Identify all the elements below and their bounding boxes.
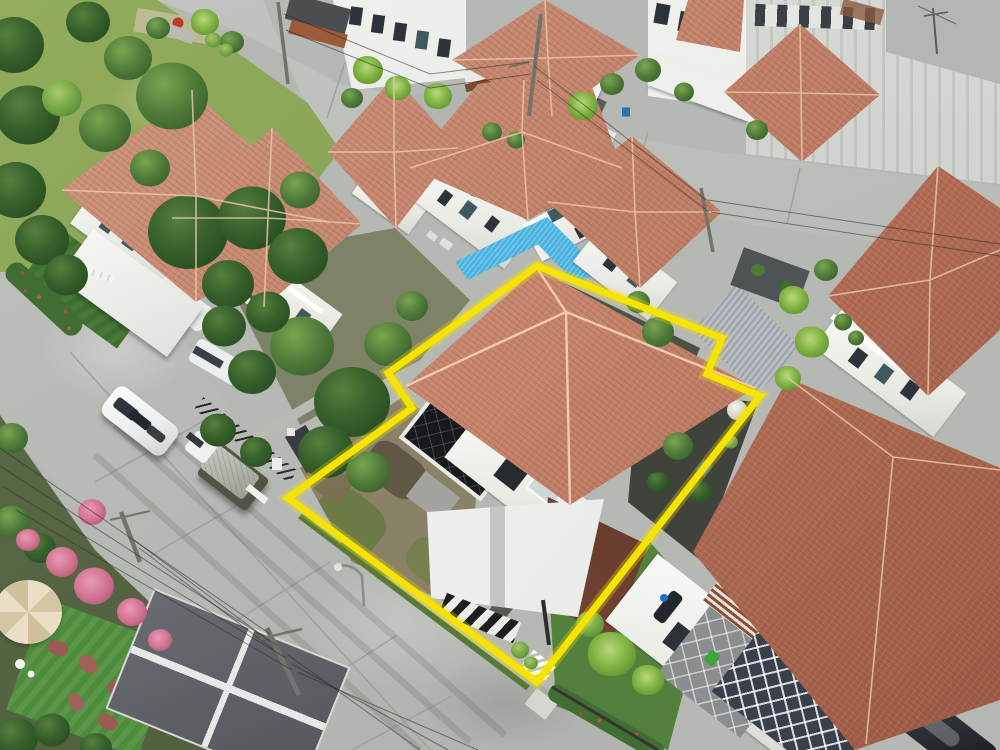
street-lamp [334, 563, 364, 606]
power-lines [0, 14, 1000, 750]
outline-yellow [288, 266, 760, 682]
target-property-outline: Highlighted property boundary [288, 266, 760, 682]
overlay-annotations: Highlighted property boundary [0, 0, 1000, 750]
utility-poles [110, 2, 956, 695]
neighbour-fence [552, 687, 658, 750]
aerial-photo: Highlighted property boundary [0, 0, 1000, 750]
